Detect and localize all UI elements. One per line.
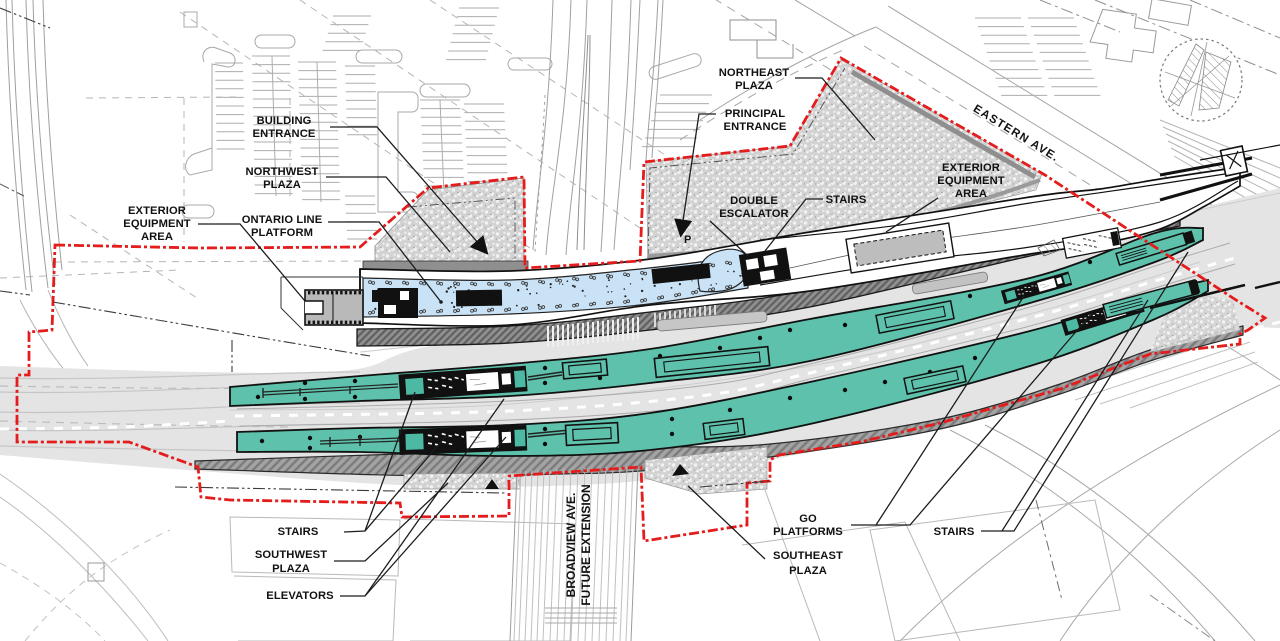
svg-text:ELEVATORS: ELEVATORS [266,590,334,602]
svg-text:STAIRS: STAIRS [278,526,319,538]
svg-text:STAIRS: STAIRS [826,194,867,206]
svg-text:BUILDINGENTRANCE: BUILDINGENTRANCE [253,115,316,140]
svg-text:BROADVIEW AVE.: BROADVIEW AVE. [564,493,578,598]
svg-text:STAIRS: STAIRS [934,526,975,538]
svg-text:FUTURE EXTENSION: FUTURE EXTENSION [579,484,593,605]
svg-text:P: P [684,234,691,246]
svg-text:PRINCIPALENTRANCE: PRINCIPALENTRANCE [724,108,787,133]
svg-text:ONTARIO LINEPLATFORM: ONTARIO LINEPLATFORM [242,214,323,239]
